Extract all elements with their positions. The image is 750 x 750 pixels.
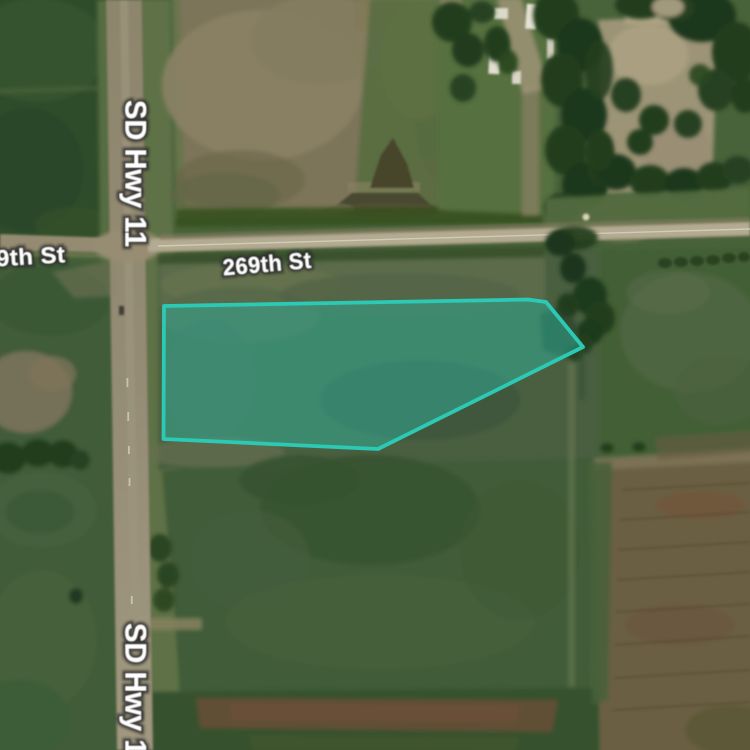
svg-text:SD Hwy 11: SD Hwy 11 bbox=[119, 100, 152, 247]
svg-text:SD Hwy 11: SD Hwy 11 bbox=[119, 623, 152, 750]
